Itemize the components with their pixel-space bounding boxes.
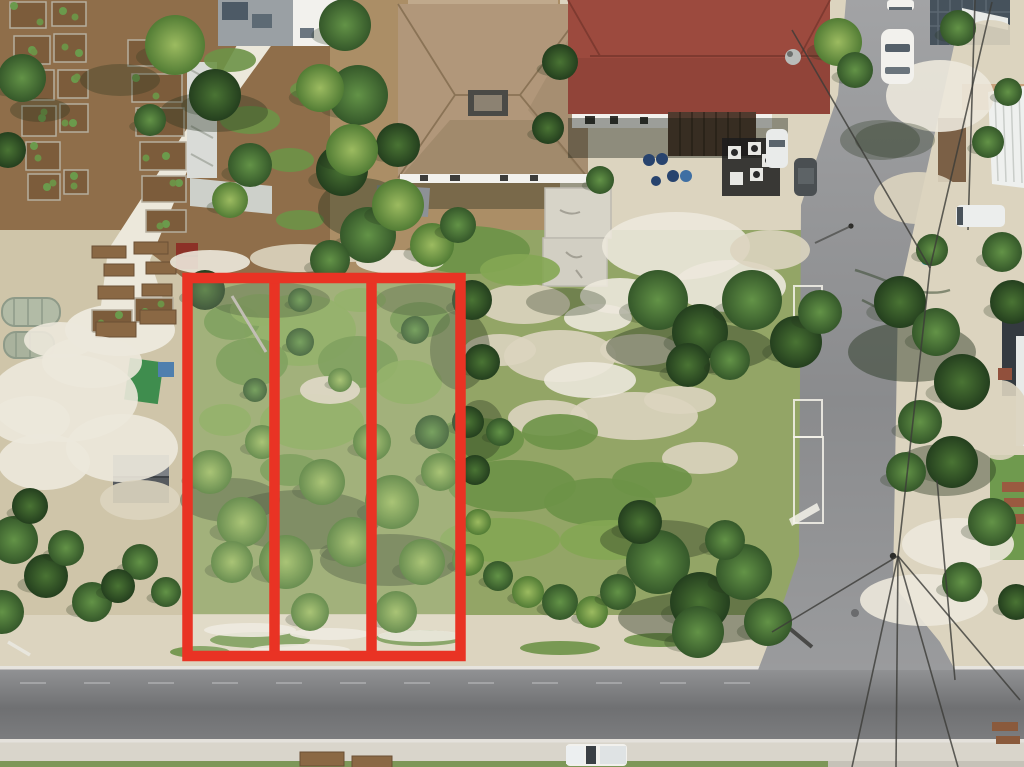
picnic-table-east-1 [1002,482,1024,492]
tree-canopy [319,0,371,51]
white-car-body [766,129,788,168]
pickup-windshield [586,746,596,764]
garden-bed [54,34,86,62]
picnic-table [300,752,344,766]
tree-canopy [376,123,420,167]
barrel-2 [656,153,668,165]
grill-burner-4 [753,171,760,178]
ground-patch [100,480,180,520]
garden-bed-plants [37,19,44,26]
pickup-hood [566,746,584,764]
van-body [956,205,1005,227]
red-deck-east [998,368,1012,380]
tree-canopy [542,584,578,620]
ground-patch [730,230,810,270]
garden-bed-plants [50,180,57,187]
lot-haze-overlay [188,278,461,656]
tree-canopy [586,166,614,194]
tan-house-window-3 [500,175,508,181]
garden-bed-plants [31,49,38,56]
tree-canopy [486,418,514,446]
tree-canopy [228,143,272,187]
picnic-table [104,264,134,276]
garden-bed-plants [75,49,83,57]
van-right [956,205,1005,227]
picnic-table [92,246,126,258]
tree-canopy [600,574,636,610]
car-top-edge-window [889,7,912,10]
tan-house-eave-wall [400,174,588,183]
picnic-table [140,310,176,324]
garden-bed-plants [30,142,38,150]
tree-canopy [940,10,976,46]
tree-canopy [722,270,782,330]
garden-bed-plants [143,155,150,162]
tree-canopy [134,104,166,136]
tree-canopy [912,308,960,356]
tree-canopy [666,343,710,387]
ground-patch [170,250,250,274]
tree-canopy [672,606,724,658]
garden-bed-plants [170,180,177,187]
garden-bed-plants [153,93,160,100]
car-by-building [766,129,788,168]
van-windshield [957,207,963,225]
tree-canopy [464,344,500,380]
picnic-table [96,322,136,337]
garden-bed [52,2,86,26]
south-street-south-edge-line [0,739,1024,743]
tree-canopy [483,561,513,591]
aerial-photo-stage [0,0,1024,767]
car-top-edge [887,0,914,10]
tree-canopy [512,576,544,608]
south-verge-pavement [828,761,1024,767]
ground-patch [874,172,962,224]
ground-patch [520,641,600,655]
car-top-body [881,29,914,84]
pickup-bed [600,746,626,764]
ground-patch [0,434,90,490]
tree-canopy [212,182,248,218]
tree-canopy [532,112,564,144]
manhole-cover [851,609,859,617]
barrel-5 [651,176,661,186]
tree-canopy [12,488,48,524]
dark-car-roof [798,168,814,184]
pickup-bottom [566,744,627,766]
garden-bed-plants [158,301,165,308]
hoop-tunnel-1 [2,298,60,326]
garden-bed-plants [74,74,81,81]
garden-bed-plants [62,44,69,51]
lot-annotation [188,278,461,656]
ground-patch [266,148,314,172]
tree-canopy [744,598,792,646]
blue-tarp [158,362,174,377]
tan-house-window-4 [530,175,538,181]
tan-house-window-1 [420,175,428,181]
tree-canopy [465,509,491,535]
brown-table-bottom-2 [996,736,1020,744]
ground-patch [644,386,716,414]
ground-patch [522,414,598,450]
tan-house-skylight-inner [474,95,502,111]
ground-patch [480,254,560,286]
garden-bed-plants [157,223,164,230]
tree-canopy [898,400,942,444]
tree-canopy [982,232,1022,272]
tree-canopy [994,78,1022,106]
garden-bed-plants [71,183,78,190]
tree-shadow [80,64,160,96]
garden-bed-plants [62,120,69,127]
south-street-asphalt [0,666,1024,743]
ground-patch [276,210,324,230]
south-curb-apron [0,743,1024,762]
satellite-dish [785,49,801,65]
tree-canopy [296,64,344,112]
garden-bed-plants [59,7,67,15]
picnic-table [352,756,392,767]
picnic-table [98,286,134,299]
dark-car-by-building [794,158,817,196]
grill-5 [730,172,743,185]
car-top-windshield [885,44,910,52]
picnic-table [134,242,168,254]
tree-shadow [840,120,920,160]
white-car-windshield [769,140,785,147]
gray-building-dark-panel [222,2,248,20]
tree-canopy [145,15,205,75]
red-building-south-slope [568,58,830,114]
ground-patch [204,48,256,72]
car-top-rear-window [885,67,910,74]
tree-canopy [934,354,990,410]
tree-canopy [705,520,745,560]
gray-building-dark-panel-2 [252,14,272,28]
picnic-table [142,284,172,296]
tree-canopy [710,340,750,380]
tree-canopy [151,577,181,607]
tree-shadow [526,288,606,316]
south-grass-verge [0,761,828,767]
ground-patch [24,322,96,358]
tree-canopy [542,44,578,80]
barrel-3 [667,170,679,182]
tree-canopy [101,569,135,603]
tan-house-window-2 [450,175,460,181]
tree-canopy [618,500,662,544]
car-top-road [881,29,914,84]
tree-canopy [48,530,84,566]
garden-bed-plants [70,172,78,180]
grill-burner-1 [731,149,738,156]
barrel-4 [680,170,692,182]
tree-canopy [968,498,1016,546]
garden-bed-plants [35,155,42,162]
garden-bed-plants [115,311,123,319]
barrel-1 [643,154,655,166]
grill-burner-2 [751,145,758,152]
tree-canopy [189,69,241,121]
tree-canopy [0,54,46,102]
aerial-photo [0,0,1024,767]
tree-canopy [926,436,978,488]
ground-patch [612,462,692,498]
tree-canopy [440,207,476,243]
tree-canopy [326,124,378,176]
garden-bed-plants [69,119,77,127]
satellite-dish-arm [787,51,793,57]
garden-bed-plants [72,14,79,21]
brown-table-bottom-1 [992,722,1018,731]
tree-canopy [372,179,424,231]
tree-canopy [972,126,1004,158]
garden-bed-plants [162,152,170,160]
ground-patch [544,362,636,398]
tree-canopy [798,290,842,334]
garden-bed-plants [10,2,18,10]
tree-canopy [837,52,873,88]
